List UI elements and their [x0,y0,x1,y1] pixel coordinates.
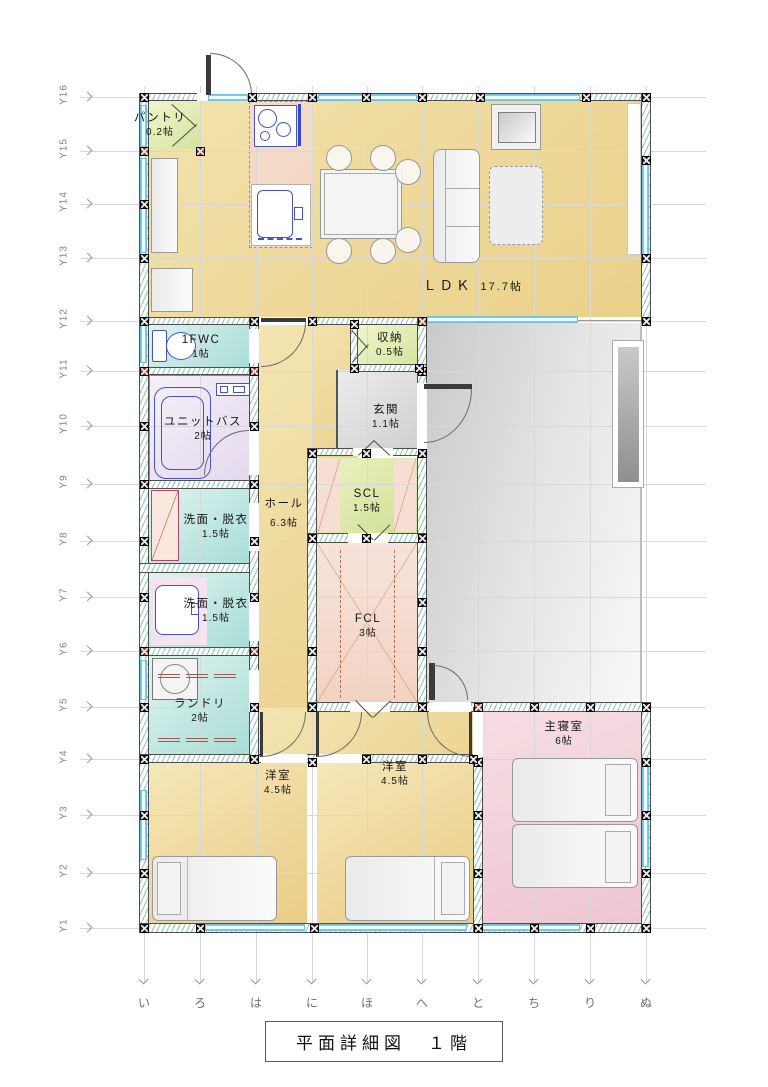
shape: 洗面・脱衣 [184,514,249,526]
shape [446,226,479,227]
grid-label-y7: Y7 [59,581,70,609]
shape [260,131,270,141]
shape [187,857,188,920]
grid-arrow-icon [83,810,93,820]
wall-post [418,449,427,458]
wall-post [250,317,259,326]
hanger-pipe [394,550,395,698]
grid-label-ni: に [302,994,322,1011]
grid-label-ho: ほ [357,994,377,1011]
shape: 洋室 [265,770,291,782]
shape: FCL [355,613,381,625]
wall-post [140,254,149,263]
wall-post [476,93,485,102]
room-label-hall: ホール6.3帖 [265,496,304,531]
room-label-bedroom1: 洋室4.5帖 [264,768,292,798]
sz: 1.1帖 [372,418,400,432]
sz: 3帖 [355,627,381,641]
grid-arrow-icon [83,366,93,376]
lounge-chair [395,159,421,185]
grid-label-nu: ぬ [636,994,656,1011]
shape [324,173,398,235]
dining-chair [326,145,352,171]
wall-post [140,200,149,209]
shape [233,386,245,393]
wall-post [310,924,319,933]
grid-label-chi: ち [524,994,544,1011]
wall-post [250,367,259,376]
window [205,924,305,931]
dining-table [320,169,402,239]
room-label-ldk: ＬＤＫ17.7帖 [423,277,523,296]
wall-post [474,869,483,878]
grid-label-i: い [134,994,154,1011]
shape: ホール [265,498,304,510]
grid-label-y3: Y3 [59,799,70,827]
window [427,316,578,323]
kitchen-stove [254,105,297,147]
grid-arrow-icon [83,199,93,209]
grid-arrow-icon [195,975,205,985]
room-label-laundry: ランドリ2帖 [174,696,226,726]
wall-post [362,534,371,543]
wall-post [474,811,483,820]
wall-post [196,924,205,933]
wall-post [586,703,595,712]
wall-wash2-laundry [139,647,256,656]
wall-post [308,93,317,102]
lounge-chair [395,227,421,253]
opening-wc [249,329,259,363]
scl-shelf-left [318,459,340,532]
grid-arrow-icon [83,923,93,933]
drawing-title: 平面詳細図 １階 [265,1021,503,1062]
shape: 洋室 [382,761,408,773]
shape: 主寝室 [545,721,584,733]
shape [441,862,465,915]
wall-post [350,320,359,329]
bed [512,824,638,888]
grid-arrow-icon [83,146,93,156]
grid-label-y8: Y8 [59,525,70,553]
window [140,660,147,700]
grid-label-y2: Y2 [59,857,70,885]
window [483,94,580,101]
grid-arrow-icon [83,868,93,878]
sz: 4.5帖 [381,775,409,789]
wall-post [140,593,149,602]
grid-arrow-icon [473,975,483,985]
szi: 17.7帖 [481,281,523,293]
sz: 1帖 [182,348,221,362]
grid-arrow-icon [83,536,93,546]
window [208,94,248,101]
room-label-entrance: 玄関1.1帖 [372,402,400,432]
wall-post [140,755,149,764]
shape: ＬＤＫ [423,278,473,293]
laundry-pole [158,738,180,742]
grid-label-y14: Y14 [59,188,70,216]
wall-post [586,924,595,933]
wall-post [140,924,149,933]
wall-post [362,93,371,102]
shape: 1FWC [182,334,221,346]
shape [605,764,631,816]
wall-post [308,534,317,543]
wall-ni-vertical [307,448,317,712]
wall-post [418,755,427,764]
kitchen-counter [151,268,193,312]
wall-post [308,647,317,656]
laundry-pole [214,738,236,742]
grid-arrow-icon [83,421,93,431]
grid-arrow-icon [83,92,93,102]
grid-arrow-icon [251,975,261,985]
shape [446,188,479,189]
wall-post [250,703,259,712]
wall-wc-bath [139,367,256,375]
floor-plan: パントリ0.2帖 ＬＤＫ17.7帖 1FWC1帖 ユニットバス2帖 収納0.5帖… [0,0,768,1087]
grid-arrow-icon [83,702,93,712]
grid-arrow-icon [83,479,93,489]
opening-master [473,712,483,757]
wall-post [469,755,478,764]
room-label-scl: SCL1.5帖 [353,486,381,516]
grid-label-y9: Y9 [59,468,70,496]
wall-post [308,317,317,326]
sz: 0.2帖 [134,126,187,140]
wall-post [474,703,483,712]
wall-post [308,758,317,767]
range-hood [298,104,301,146]
shape [434,857,435,920]
dining-chair [370,238,396,264]
wall-post [362,449,371,458]
wall-post [140,422,149,431]
sz: 1.5帖 [184,612,249,626]
room-label-pantry: パントリ0.2帖 [134,110,187,140]
shape: ランドリ [174,698,226,710]
shape [258,238,302,240]
wall-post [308,703,317,712]
bed [512,758,638,822]
wall-post [530,924,539,933]
entrance-step-line [336,370,338,454]
room-label-wc: 1FWC1帖 [182,332,221,362]
wall-post [250,755,259,764]
shape [276,122,291,137]
shape [498,112,536,143]
sz: 2帖 [174,712,226,726]
top-back-door-arc [210,53,252,95]
wall-post [308,449,317,458]
grid-arrow-icon [83,253,93,263]
shape [605,831,631,883]
room-label-washroom2: 洗面・脱衣1.5帖 [184,596,249,626]
shape: SCL [354,488,381,500]
wall-post [418,317,427,326]
wall-post [250,422,259,431]
room-label-fcl: FCL3帖 [355,611,381,641]
grid-arrow-icon [641,975,651,985]
laundry-pole [214,674,236,678]
wall-post [642,758,651,767]
wall-post [140,811,149,820]
shape [257,190,293,238]
grid-arrow-icon [83,316,93,326]
shape: 洗面・脱衣 [184,598,249,610]
shape [152,330,167,362]
sz: 1.5帖 [353,502,381,516]
room-label-storage: 収納0.5帖 [376,330,404,360]
grid-arrow-icon [83,754,93,764]
grid-label-y6: Y6 [59,635,70,663]
sz: 6.3帖 [265,517,304,531]
shape [160,664,190,694]
shape: ユニットバス [164,416,242,428]
bed [345,856,470,921]
sofa [433,149,480,263]
opening-back-door [429,702,471,712]
porch-floor [424,323,641,702]
shape: 収納 [377,332,403,344]
grid-arrow-icon [139,975,149,985]
grid-arrow-icon [529,975,539,985]
wall-wash1-wash2 [139,563,256,573]
grid-label-y1: Y1 [59,912,70,940]
wall-post [474,924,483,933]
grid-arrow-icon [362,975,372,985]
shape: 玄関 [373,404,399,416]
grid-label-y5: Y5 [59,691,70,719]
porch-top-line [578,320,641,321]
window [317,924,467,931]
grid-label-he: へ [412,994,432,1011]
coffee-table [489,166,543,245]
grid-arrow-icon [83,592,93,602]
room-label-washroom1: 洗面・脱衣1.5帖 [184,512,249,542]
sz: 4.5帖 [264,784,292,798]
wall-post [642,924,651,933]
sz: 1.5帖 [184,528,249,542]
sz: 0.5帖 [376,346,404,360]
grid-label-ro: ろ [190,994,210,1011]
wall-post [642,156,651,165]
grid-label-y4: Y4 [59,743,70,771]
grid-label-y11: Y11 [59,355,70,383]
shape [618,347,639,482]
scl-shelf-right [394,459,416,532]
grid-label-ha: は [246,994,266,1011]
grid-label-y15: Y15 [59,135,70,163]
wall-post [196,147,205,156]
bath-counter [216,383,250,396]
dining-chair [326,238,352,264]
wall-post [642,317,651,326]
grid-arrow-icon [307,975,317,985]
grid-label-ri: り [580,994,600,1011]
laundry-pole [158,674,180,678]
wall-post [418,534,427,543]
wall-post [418,598,427,607]
room-label-master-bedroom: 主寝室6帖 [545,719,584,749]
hanger-pipe [340,550,341,698]
grid-arrow-icon [83,646,93,656]
bed [152,856,277,921]
wall-post [642,254,651,263]
kitchen-island [251,184,311,246]
wall-post [582,93,591,102]
window [140,325,147,363]
wall-post [140,869,149,878]
grid-label-to: と [468,994,488,1011]
laundry-pole [186,738,208,742]
grid-arrow-icon [417,975,427,985]
tv-board [491,104,541,150]
wall-bath-wash1 [139,480,256,489]
shape: パントリ [134,112,187,124]
washing-machine [152,658,198,700]
wall-post [248,93,257,102]
wall-post [250,593,259,602]
sz: 6帖 [545,735,584,749]
wall-post [642,869,651,878]
curtain-box [627,103,641,255]
sz: 2帖 [164,430,242,444]
grid-label-y13: Y13 [59,242,70,270]
wall-post [140,480,149,489]
wall-post [140,537,149,546]
wall-post [250,647,259,656]
grid-label-y16: Y16 [59,81,70,109]
dining-chair [370,145,396,171]
shape [434,150,446,262]
wall-post [415,364,424,373]
wall-post [418,93,427,102]
wall-post [140,317,149,326]
porch-box [612,340,644,488]
wall-post [140,367,149,376]
wall-post [418,703,427,712]
wall-post [140,147,149,156]
window [642,160,649,255]
wall-post [140,703,149,712]
opening-bath [249,427,259,475]
shape [220,386,228,393]
wall-post [250,537,259,546]
wall-post [530,703,539,712]
grid-arrow-icon [585,975,595,985]
wall-post [642,811,651,820]
linen-storage [151,490,179,561]
kitchen-cabinet [151,158,178,253]
shape [258,109,277,128]
room-label-bedroom2: 洋室4.5帖 [381,759,409,789]
wall-post [418,647,427,656]
grid-label-y12: Y12 [59,305,70,333]
wall-post [140,647,149,656]
window [140,790,147,860]
wall-post [140,93,149,102]
grid-label-y10: Y10 [59,410,70,438]
room-label-unit-bath: ユニットバス2帖 [164,414,242,444]
wall-post [250,480,259,489]
wall-post [362,755,371,764]
laundry-pole [186,674,208,678]
shape [157,862,181,915]
wall-post [350,364,359,373]
wall-post [642,703,651,712]
shape [294,207,303,220]
wall-post [642,93,651,102]
